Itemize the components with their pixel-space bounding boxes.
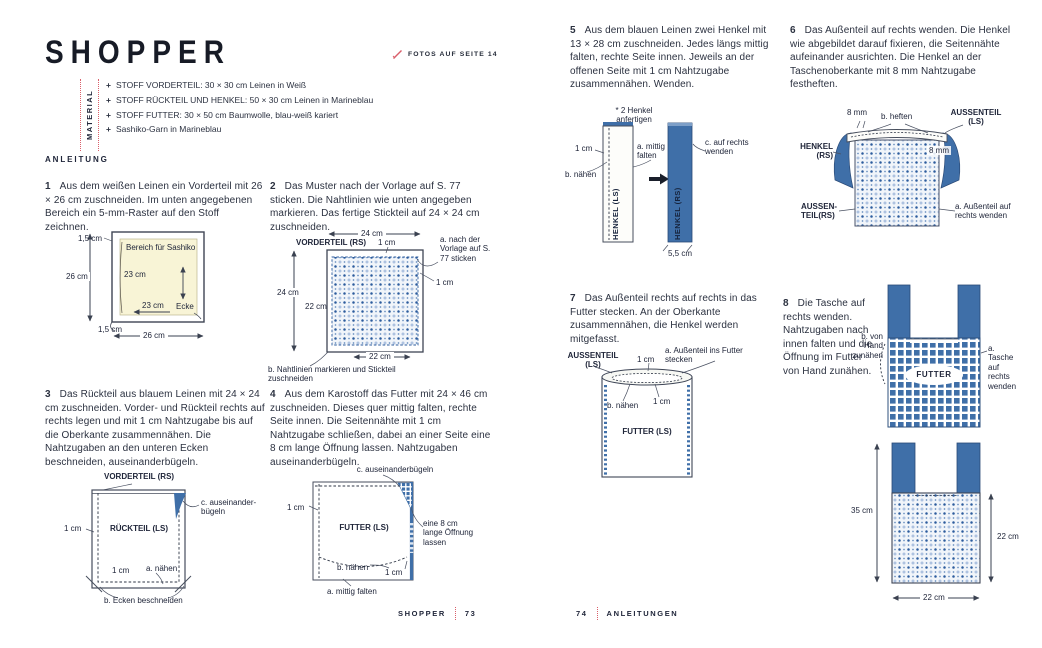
d1-area-label: Bereich für Sashiko bbox=[126, 243, 195, 252]
d1-offset-bottom: 1,5 cm bbox=[98, 325, 122, 334]
diagram-step8-tasche: b. von Hand zunähen FUTTER a. Tasche auf… bbox=[850, 278, 1022, 433]
plus-bullet: + bbox=[106, 110, 111, 120]
plus-bullet: + bbox=[106, 95, 111, 105]
footer-left-title: SHOPPER bbox=[398, 609, 446, 618]
d4-center-label: FUTTER (LS) bbox=[323, 523, 405, 532]
d7-label-futter: FUTTER (LS) bbox=[617, 427, 677, 436]
d1-width-inner: 23 cm bbox=[142, 301, 164, 310]
step-number: 8 bbox=[783, 298, 798, 309]
diagram-final-masse: 35 cm 22 cm 22 cm bbox=[850, 428, 1025, 613]
d1-height-inner: 23 cm bbox=[124, 270, 146, 279]
section-heading: ANLEITUNG bbox=[45, 155, 109, 164]
d4-note-b: b. nähen bbox=[337, 563, 368, 572]
d4-seam-left: 1 cm bbox=[287, 503, 304, 512]
d5-label-henkel-ls: HENKEL (LS) bbox=[611, 168, 620, 240]
d8-note-a: a. Tasche auf rechts wenden bbox=[988, 344, 1022, 391]
d1-corner-label: Ecke bbox=[176, 302, 194, 311]
footer-divider bbox=[597, 607, 598, 620]
d2-seam-right: 1 cm bbox=[436, 278, 453, 287]
d2-seam-top: 1 cm bbox=[378, 238, 395, 247]
material-list: +STOFF VORDERTEIL: 30 × 30 cm Leinen in … bbox=[106, 80, 373, 139]
material-item: +STOFF RÜCKTEIL UND HENKEL: 50 × 30 cm L… bbox=[106, 95, 373, 105]
plus-bullet: + bbox=[106, 124, 111, 134]
step-4-text: 4Aus dem Karostoff das Futter mit 24 × 4… bbox=[270, 388, 492, 470]
footer-left: SHOPPER 73 bbox=[398, 607, 476, 620]
d3-note-b: b. Ecken beschneiden bbox=[104, 596, 199, 605]
footer-divider bbox=[455, 607, 456, 620]
page-title: SHOPPER bbox=[45, 34, 231, 71]
d6-label-henkel: HENKEL (RS) bbox=[795, 142, 833, 161]
d1-height-outer: 26 cm bbox=[64, 272, 90, 281]
footer-right: 74 ANLEITUNGEN bbox=[576, 607, 678, 620]
d6-label-aussenteil-ls: AUSSENTEIL (LS) bbox=[947, 108, 1005, 127]
material-item: +STOFF FUTTER: 30 × 50 cm Baumwolle, bla… bbox=[106, 110, 373, 120]
d5-seam: 1 cm bbox=[575, 144, 592, 153]
d5-label-henkel-rs: HENKEL (RS) bbox=[673, 168, 682, 240]
diagram-step4-futter: c. auseinanderbügeln 1 cm FUTTER (LS) ei… bbox=[285, 465, 485, 607]
step-3-text: 3Das Rückteil aus blauem Leinen mit 24 ×… bbox=[45, 388, 265, 470]
material-item-text: STOFF FUTTER: 30 × 50 cm Baumwolle, blau… bbox=[116, 110, 338, 120]
d6-label-aussenteil-rs: AUSSEN- TEIL(RS) bbox=[801, 202, 847, 221]
step-number: 1 bbox=[45, 181, 60, 192]
d7-seam-top: 1 cm bbox=[637, 355, 654, 364]
material-item-text: STOFF RÜCKTEIL UND HENKEL: 50 × 30 cm Le… bbox=[116, 95, 373, 105]
footer-left-page-number: 73 bbox=[465, 609, 477, 618]
d3-center-label: RÜCKTEIL (LS) bbox=[106, 524, 172, 533]
diagram-step1-vorderteil: 1,5 cm 26 cm Bereich für Sashiko 23 cm 2… bbox=[70, 228, 220, 346]
d8-label-futter: FUTTER bbox=[910, 370, 958, 379]
d3-note-c: c. auseinander- bügeln bbox=[201, 498, 261, 517]
diagram-step5-henkel: * 2 Henkel anfertigen 1 cm b. nähen HENK… bbox=[565, 106, 770, 261]
d5-note-c: c. auf rechts wenden bbox=[705, 138, 749, 157]
material-item: +STOFF VORDERTEIL: 30 × 30 cm Leinen in … bbox=[106, 80, 373, 90]
d4-note-c: c. auseinanderbügeln bbox=[343, 465, 447, 474]
diagram-step7-einsetzen: AUSSENTEIL (LS) 1 cm a. Außenteil ins Fu… bbox=[565, 345, 777, 485]
d9-height-body: 22 cm bbox=[997, 532, 1019, 541]
d8-note-b: b. von Hand zunähen bbox=[850, 332, 883, 360]
material-item-text: STOFF VORDERTEIL: 30 × 30 cm Leinen in W… bbox=[116, 80, 306, 90]
d3-note-a: a. nähen bbox=[146, 564, 177, 573]
d4-note-a: a. mittig falten bbox=[327, 587, 377, 596]
footer-right-title: ANLEITUNGEN bbox=[607, 609, 679, 618]
d2-note-a: a. nach der Vorlage auf S. 77 sticken bbox=[440, 235, 492, 263]
material-label: MATERIAL bbox=[85, 81, 94, 149]
d7-note-a: a. Außenteil ins Futter stecken bbox=[665, 346, 757, 365]
material-item-text: Sashiko-Garn in Marineblau bbox=[116, 124, 221, 134]
d7-seam-inner: 1 cm bbox=[653, 397, 670, 406]
d4-seam-bottom: 1 cm bbox=[385, 568, 402, 577]
step-number: 3 bbox=[45, 389, 60, 400]
plus-bullet: + bbox=[106, 80, 111, 90]
step-number: 4 bbox=[270, 389, 285, 400]
diagram-step3-rueckteil: VORDERTEIL (RS) RÜCKTEIL (LS) 1 cm c. au… bbox=[60, 472, 275, 610]
d2-title: VORDERTEIL (RS) bbox=[296, 238, 366, 247]
d2-height-left: 24 cm bbox=[274, 288, 302, 297]
material-item: +Sashiko-Garn in Marineblau bbox=[106, 124, 373, 134]
footer-right-page-number: 74 bbox=[576, 609, 588, 618]
step-number: 5 bbox=[570, 25, 585, 36]
d6-note-b: b. heften bbox=[881, 112, 912, 121]
d2-width-inner: 22 cm bbox=[366, 352, 394, 361]
step-1-text: 1Aus dem weißen Leinen ein Vorderteil mi… bbox=[45, 180, 265, 234]
photos-reference-label: FOTOS AUF SEITE 14 bbox=[408, 51, 498, 58]
d7-note-b: b. nähen bbox=[607, 401, 638, 410]
d1-width-outer: 26 cm bbox=[140, 331, 168, 340]
material-rail: MATERIAL bbox=[80, 79, 99, 151]
d6-mm-left: 8 mm bbox=[847, 108, 867, 117]
step-number: 6 bbox=[790, 25, 805, 36]
d3-top-label: VORDERTEIL (RS) bbox=[104, 472, 174, 481]
d5-width: 5,5 cm bbox=[665, 249, 695, 258]
d1-offset-top: 1,5 cm bbox=[78, 234, 102, 243]
d5-note-a: a. mittig falten bbox=[637, 142, 675, 161]
d2-note-b: b. Nahtlinien markieren und Stickteil zu… bbox=[268, 365, 400, 384]
d9-height-total: 35 cm bbox=[848, 506, 876, 515]
step-number: 2 bbox=[270, 181, 285, 192]
diagram-step6-aussenteil: 8 mm b. heften AUSSENTEIL (LS) HENKEL (R… bbox=[795, 104, 1020, 239]
d3-seam-bottom: 1 cm bbox=[112, 566, 129, 575]
d6-note-a: a. Außenteil auf rechts wenden bbox=[955, 202, 1013, 221]
d5-note-b: b. nähen bbox=[565, 170, 596, 179]
d2-height-inner: 22 cm bbox=[305, 302, 327, 311]
needle-icon bbox=[392, 49, 403, 60]
d7-label-aussenteil: AUSSENTEIL (LS) bbox=[567, 351, 619, 370]
d9-width-body: 22 cm bbox=[920, 593, 948, 602]
d4-note-open: eine 8 cm lange Öffnung lassen bbox=[423, 519, 478, 547]
d3-seam-left: 1 cm bbox=[64, 524, 81, 533]
d6-mm-right: 8 mm bbox=[927, 146, 951, 155]
diagram-step2-stick: 24 cm VORDERTEIL (RS) 1 cm a. nach der V… bbox=[268, 226, 493, 384]
photos-reference: FOTOS AUF SEITE 14 bbox=[392, 49, 498, 60]
step-number: 7 bbox=[570, 293, 585, 304]
d5-note-make: * 2 Henkel anfertigen bbox=[605, 106, 663, 125]
step-5-text: 5Aus dem blauen Leinen zwei Henkel mit 1… bbox=[570, 24, 778, 92]
step-6-text: 6Das Außenteil auf rechts wenden. Die He… bbox=[790, 24, 1015, 92]
step-7-text: 7Das Außenteil rechts auf rechts in das … bbox=[570, 292, 770, 346]
